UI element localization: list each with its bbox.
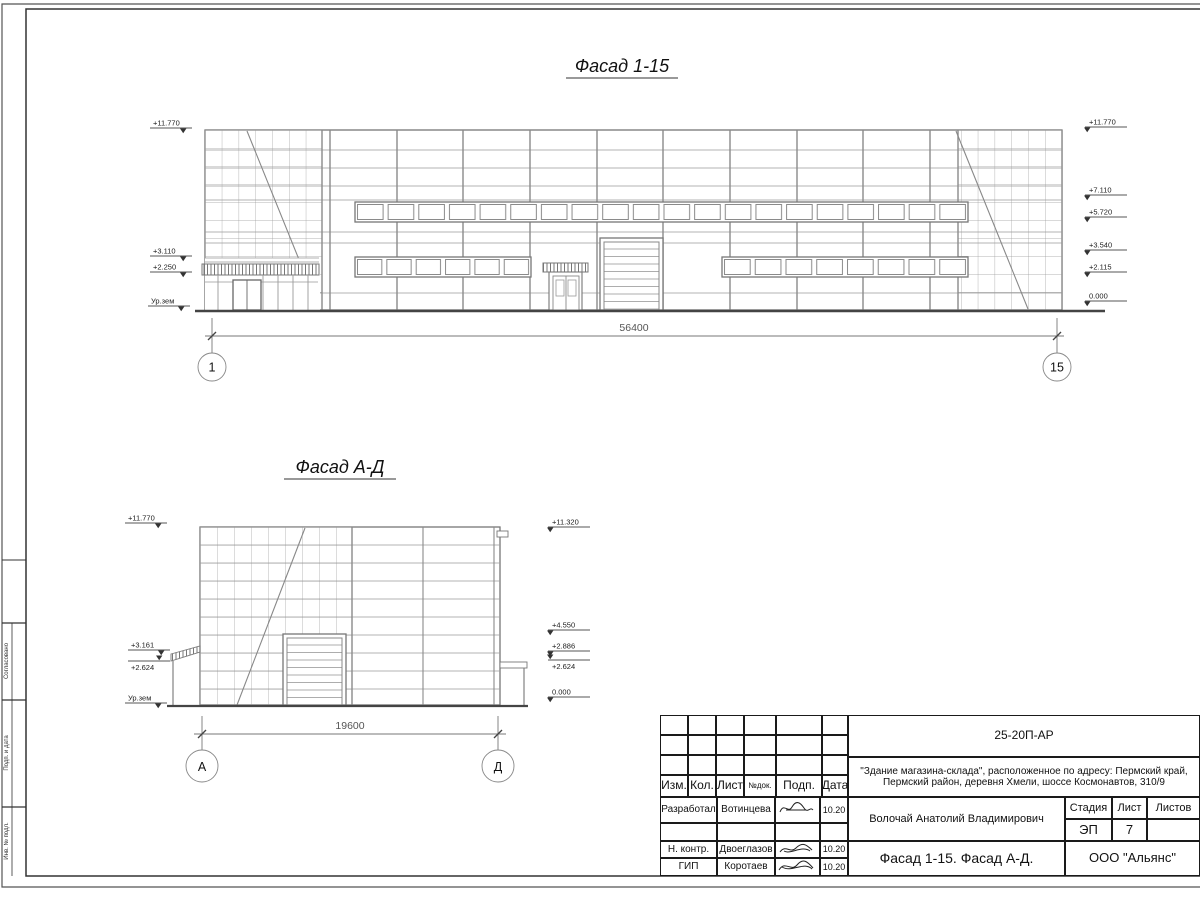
facade1-window-band-lower-right: [722, 257, 968, 277]
date-cell: 10.20: [820, 841, 848, 858]
signature: [776, 798, 816, 818]
svg-text:+3.110: +3.110: [153, 247, 176, 256]
elevation-mark: +11.770: [150, 119, 192, 134]
address-line-2: Пермский район, деревня Хмели, шоссе Кос…: [883, 777, 1165, 789]
svg-text:+11.770: +11.770: [1089, 118, 1116, 127]
facade2-title: Фасад А-Д: [296, 457, 385, 477]
facade-a-d-drawing: Фасад А-Д: [125, 457, 590, 782]
revision-cell: [716, 755, 744, 775]
designer-name-cell: Волочай Анатолий Владимирович: [848, 797, 1065, 841]
svg-text:А: А: [198, 760, 207, 774]
svg-text:+3.540: +3.540: [1089, 241, 1112, 250]
svg-text:+2.624: +2.624: [131, 663, 154, 672]
stage-value-cell: ЭП: [1065, 819, 1112, 841]
signature: [776, 859, 816, 874]
revision-cell: [822, 715, 848, 735]
entrance-canopy: [202, 264, 319, 275]
elevation-mark: Ур.зем: [148, 297, 190, 312]
svg-text:+5.720: +5.720: [1089, 208, 1112, 217]
facade2-roof-protrusion: [497, 531, 508, 537]
signature-cell: [775, 797, 820, 823]
elevation-mark: +3.540: [1084, 241, 1127, 256]
header-kol: Кол.: [688, 775, 716, 797]
elevation-mark: +2.624: [547, 655, 590, 672]
empty-cell: [775, 823, 820, 841]
revision-cell: [744, 715, 776, 735]
revision-cell: [660, 755, 688, 775]
door-canopy: [543, 263, 588, 272]
revision-cell: [716, 715, 744, 735]
facade2-left-canopy: [171, 646, 200, 705]
facade-1-15-drawing: Фасад 1-15: [148, 56, 1127, 381]
stage-label-cell: Стадия: [1065, 797, 1112, 819]
empty-cell: [820, 823, 848, 841]
revision-cell: [744, 735, 776, 755]
signature-cell: [775, 841, 820, 858]
revision-cell: [744, 755, 776, 775]
header-ndok: №док.: [744, 775, 776, 797]
header-izm: Изм.: [660, 775, 688, 797]
address-line-1: "Здание магазина-склада", расположенное …: [860, 766, 1187, 778]
elevation-mark: +2.250: [150, 263, 192, 278]
revision-cell: [688, 735, 716, 755]
axis-circle-1: 1: [198, 353, 226, 381]
axis-circle-d: Д: [482, 750, 514, 782]
svg-text:0.000: 0.000: [552, 688, 571, 697]
facade1-roller-gate: [600, 238, 663, 310]
signature: [776, 842, 816, 856]
doc-number-cell: 25-20П-АР: [848, 715, 1200, 757]
elevation-mark: +11.770: [1084, 118, 1127, 133]
elevation-mark: +5.720: [1084, 208, 1127, 223]
svg-text:+2.624: +2.624: [552, 662, 575, 671]
facade1-window-band-upper: [355, 202, 968, 222]
elevation-mark: +11.320: [547, 518, 590, 533]
empty-cell: [660, 823, 717, 841]
svg-text:15: 15: [1050, 361, 1064, 375]
drawing-sheet: Согласовано Подп. и дата Инв. № подл. Фа…: [0, 0, 1200, 900]
facade1-title: Фасад 1-15: [575, 56, 670, 76]
side-stamp-label: Инв. № подл.: [3, 822, 10, 860]
revision-cell: [688, 715, 716, 735]
revision-cell: [660, 735, 688, 755]
sheet-number-cell: 7: [1112, 819, 1147, 841]
facade1-center-door: [543, 263, 588, 310]
revision-cell: [660, 715, 688, 735]
project-address-cell: "Здание магазина-склада", расположенное …: [848, 757, 1200, 797]
elevation-mark: Ур.зем: [125, 694, 167, 709]
sheets-count-cell: [1147, 819, 1200, 841]
svg-text:1: 1: [209, 361, 216, 375]
svg-text:Ур.зем: Ур.зем: [151, 297, 174, 306]
role-cell: ГИП: [660, 858, 717, 876]
svg-text:+4.550: +4.550: [552, 621, 575, 630]
role-cell: Н. контр.: [660, 841, 717, 858]
svg-text:+2.250: +2.250: [153, 263, 176, 272]
date-cell: 10.20: [820, 797, 848, 823]
elevation-mark: +2.115: [1084, 263, 1127, 278]
elevation-mark: 0.000: [1084, 292, 1127, 307]
svg-text:+3.161: +3.161: [131, 641, 154, 650]
side-stamp: Согласовано Подп. и дата Инв. № подл.: [2, 560, 26, 876]
revision-cell: [776, 755, 822, 775]
svg-text:Д: Д: [494, 760, 503, 774]
name-cell: Двоеглазов: [717, 841, 775, 858]
svg-text:+2.115: +2.115: [1089, 263, 1112, 272]
facade2-dimension-value: 19600: [335, 720, 364, 732]
svg-text:Ур.зем: Ур.зем: [128, 694, 151, 703]
elevation-mark: +2.886: [547, 642, 590, 657]
revision-cell: [776, 715, 822, 735]
elevation-mark: +3.161: [128, 641, 170, 656]
elevation-mark: 0.000: [547, 688, 590, 703]
revision-cell: [716, 735, 744, 755]
header-podp: Подп.: [776, 775, 822, 797]
facade1-left-entrance: [202, 258, 320, 310]
role-cell: Разработал: [660, 797, 717, 823]
header-list: Лист: [716, 775, 744, 797]
elevation-mark: +4.550: [547, 621, 590, 636]
axis-circle-a: А: [186, 750, 218, 782]
facade1-right-panel-grid: [958, 130, 1062, 310]
elevation-mark: +7.110: [1084, 186, 1127, 201]
revision-cell: [688, 755, 716, 775]
name-cell: Вотинцева: [717, 797, 775, 823]
name-cell: Коротаев: [717, 858, 775, 876]
facade1-window-band-lower-left: [355, 257, 531, 277]
date-cell: 10.20: [820, 858, 848, 876]
header-data: Дата: [822, 775, 848, 797]
elevation-mark: +3.110: [150, 247, 192, 262]
facade2-right-canopy: [500, 662, 527, 705]
svg-text:+7.110: +7.110: [1089, 186, 1112, 195]
company-cell: ООО "Альянс": [1065, 841, 1200, 876]
elevation-mark: +11.770: [125, 514, 167, 529]
sheet-title-cell: Фасад 1-15. Фасад А-Д.: [848, 841, 1065, 876]
revision-cell: [822, 755, 848, 775]
facade1-dimension-value: 56400: [619, 322, 648, 334]
title-block: Изм. Кол. Лист №док. Подп. Дата Разработ…: [660, 715, 1200, 876]
svg-text:+11.770: +11.770: [128, 514, 155, 523]
facade2-roller-gate: [283, 634, 346, 705]
empty-cell: [717, 823, 775, 841]
sheet-label-cell: Лист: [1112, 797, 1147, 819]
side-stamp-label: Согласовано: [4, 642, 10, 679]
signature-cell: [775, 858, 820, 876]
sheets-label-cell: Листов: [1147, 797, 1200, 819]
svg-text:0.000: 0.000: [1089, 292, 1108, 301]
svg-text:+2.886: +2.886: [552, 642, 575, 651]
elevation-mark: +2.624: [128, 656, 170, 673]
revision-cell: [822, 735, 848, 755]
svg-text:+11.770: +11.770: [153, 119, 180, 128]
svg-text:+11.320: +11.320: [552, 518, 579, 527]
side-stamp-label: Подп. и дата: [4, 735, 10, 771]
axis-circle-15: 15: [1043, 353, 1071, 381]
revision-cell: [776, 735, 822, 755]
